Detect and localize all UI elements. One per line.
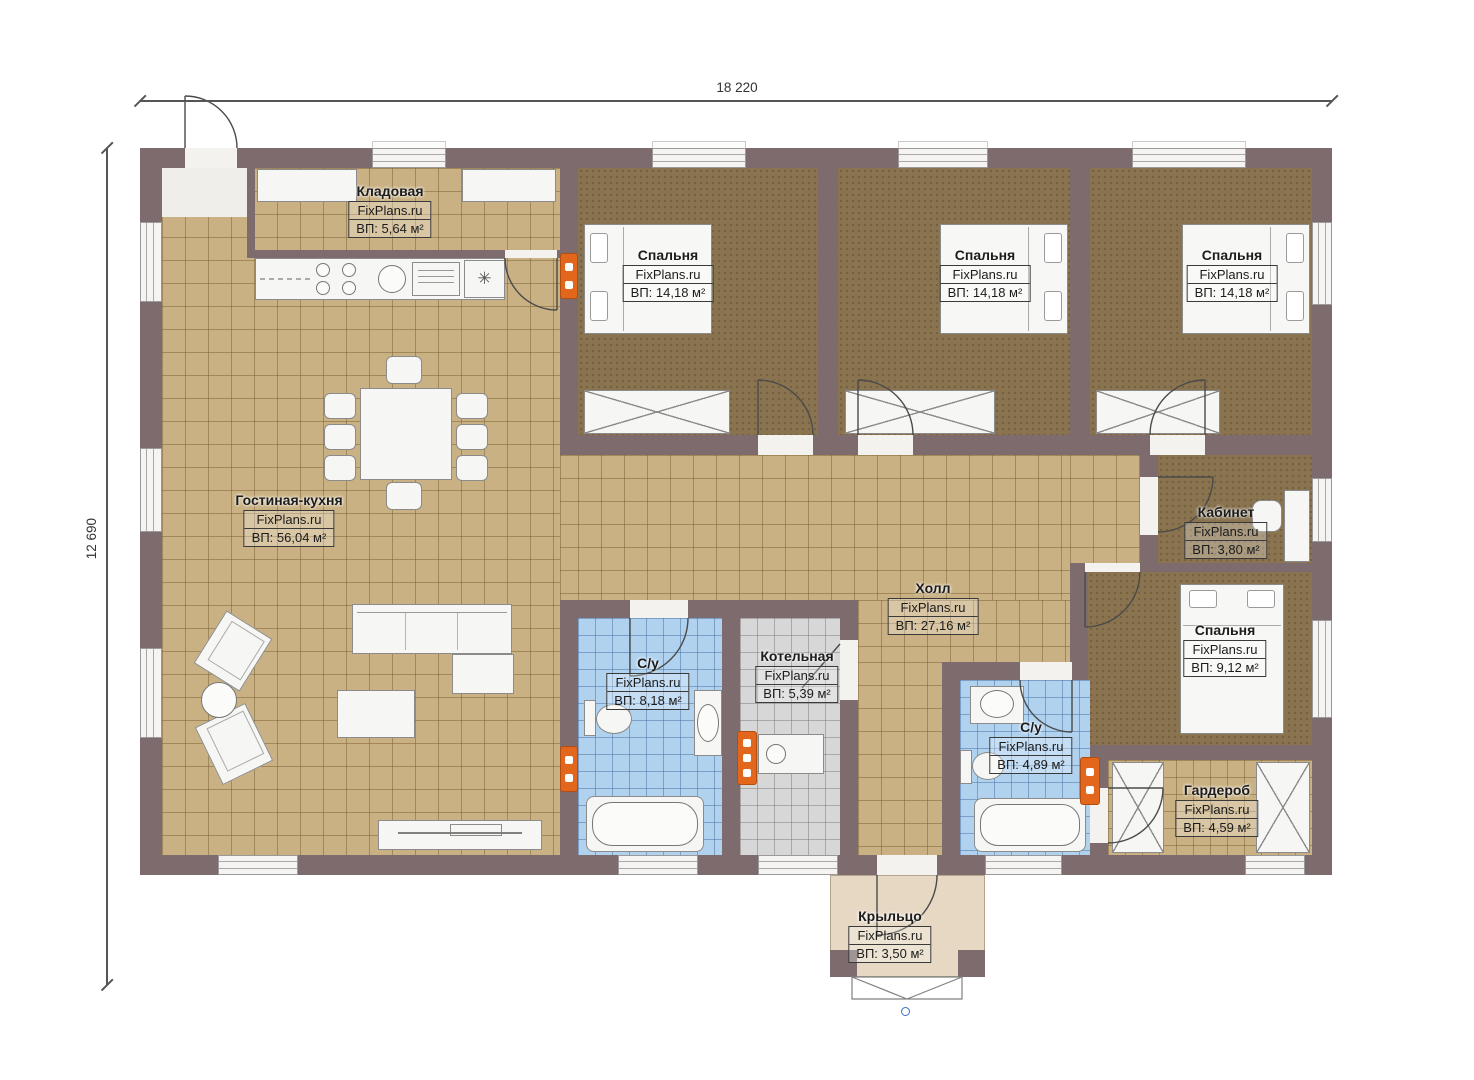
- room-label-bedroom3: Спальня FixPlans.ru ВП: 14,18 м²: [1187, 247, 1278, 302]
- entry-point-marker: [901, 1007, 910, 1016]
- radiator: [737, 731, 757, 785]
- wardrobe: [584, 390, 730, 434]
- room-info-box: FixPlans.ru ВП: 8,18 м²: [606, 673, 689, 710]
- hall-floor-south: [858, 662, 942, 855]
- wardrobe: [1256, 762, 1310, 853]
- room-area: ВП: 14,18 м²: [1188, 283, 1277, 301]
- window: [1312, 222, 1332, 305]
- chair: [456, 455, 488, 481]
- desk: [1284, 490, 1310, 562]
- room-name: Крыльцо: [848, 908, 931, 924]
- tv: [450, 824, 502, 836]
- room-label-hall: Холл FixPlans.ru ВП: 27,16 м²: [888, 580, 979, 635]
- brand-watermark: FixPlans.ru: [245, 511, 334, 528]
- room-area: ВП: 4,59 м²: [1176, 818, 1257, 836]
- dimension-line-top: [140, 100, 1332, 102]
- room-name: Спальня: [623, 247, 714, 263]
- window: [372, 148, 446, 168]
- room-name: Спальня: [1183, 622, 1266, 638]
- room-label-kabinet: Кабинет FixPlans.ru ВП: 3,80 м²: [1184, 504, 1267, 559]
- brand-watermark: FixPlans.ru: [607, 674, 688, 691]
- chair: [456, 393, 488, 419]
- chair: [324, 455, 356, 481]
- pillow: [1286, 233, 1304, 263]
- room-label-bedroom4: Спальня FixPlans.ru ВП: 9,12 м²: [1183, 622, 1266, 677]
- brand-watermark: FixPlans.ru: [1184, 641, 1265, 658]
- hall-floor-nook: [1070, 455, 1140, 563]
- room-label-living: Гостиная-кухня FixPlans.ru ВП: 56,04 м²: [235, 492, 342, 547]
- dimension-line-left: [106, 148, 108, 985]
- boiler-dial: [766, 744, 786, 764]
- sofa-chaise: [452, 654, 514, 694]
- pantry-shelf: [257, 169, 357, 202]
- room-name: Кабинет: [1184, 504, 1267, 520]
- door-opening: [1085, 563, 1140, 572]
- room-area: ВП: 5,39 м²: [756, 684, 837, 702]
- window: [1312, 620, 1332, 718]
- room-info-box: FixPlans.ru ВП: 3,50 м²: [848, 926, 931, 963]
- chair: [456, 424, 488, 450]
- brand-watermark: FixPlans.ru: [1185, 523, 1266, 540]
- room-info-box: FixPlans.ru ВП: 56,04 м²: [244, 510, 335, 547]
- pillow: [590, 233, 608, 263]
- chair: [324, 393, 356, 419]
- room-info-box: FixPlans.ru ВП: 14,18 м²: [623, 265, 714, 302]
- window: [618, 855, 698, 875]
- window: [140, 648, 162, 738]
- room-label-garderob: Гардероб FixPlans.ru ВП: 4,59 м²: [1175, 782, 1258, 837]
- room-area: ВП: 3,50 м²: [849, 944, 930, 962]
- door-opening: [758, 435, 813, 455]
- room-label-kladovaya: Кладовая FixPlans.ru ВП: 5,64 м²: [348, 183, 431, 238]
- coffee-table: [337, 690, 415, 738]
- room-area: ВП: 9,12 м²: [1184, 658, 1265, 676]
- room-info-box: FixPlans.ru ВП: 5,39 м²: [755, 666, 838, 703]
- porch-steps: [852, 977, 962, 999]
- dining-table: [360, 388, 452, 480]
- side-table: [201, 682, 237, 718]
- room-name: Гардероб: [1175, 782, 1258, 798]
- room-name: Кладовая: [348, 183, 431, 199]
- room-name: Холл: [888, 580, 979, 596]
- brand-watermark: FixPlans.ru: [1176, 801, 1257, 818]
- window: [1132, 148, 1246, 168]
- radiator: [560, 746, 578, 792]
- dishwasher-lines: [418, 270, 454, 288]
- room-area: ВП: 14,18 м²: [941, 283, 1030, 301]
- room-area: ВП: 8,18 м²: [607, 691, 688, 709]
- room-area: ВП: 14,18 м²: [624, 283, 713, 301]
- stove-burner-icon: [342, 281, 356, 295]
- room-info-box: FixPlans.ru ВП: 14,18 м²: [1187, 265, 1278, 302]
- room-area: ВП: 4,89 м²: [990, 755, 1071, 773]
- room-name: Спальня: [940, 247, 1031, 263]
- room-name: Спальня: [1187, 247, 1278, 263]
- bathtub-inner: [592, 802, 698, 846]
- brand-watermark: FixPlans.ru: [849, 927, 930, 944]
- entry-mat: [162, 168, 247, 217]
- door-opening: [630, 600, 688, 618]
- stove-burner-icon: [316, 281, 330, 295]
- pantry-shelf: [462, 169, 556, 202]
- window: [758, 855, 838, 875]
- window: [652, 148, 746, 168]
- window: [140, 448, 162, 532]
- door-opening: [505, 250, 557, 258]
- door-opening: [1150, 435, 1205, 455]
- brand-watermark: FixPlans.ru: [349, 202, 430, 219]
- room-info-box: FixPlans.ru ВП: 27,16 м²: [888, 598, 979, 635]
- room-area: ВП: 27,16 м²: [889, 616, 978, 634]
- brand-watermark: FixPlans.ru: [889, 599, 978, 616]
- pillow: [1247, 590, 1275, 608]
- wardrobe: [1112, 762, 1164, 853]
- room-label-bathroom2: С/у FixPlans.ru ВП: 4,89 м²: [989, 719, 1072, 774]
- room-name: С/у: [606, 655, 689, 671]
- door-opening: [1140, 477, 1158, 535]
- radiator: [560, 253, 578, 299]
- toilet-tank: [584, 700, 596, 736]
- radiator: [1080, 757, 1100, 805]
- window: [1245, 855, 1305, 875]
- chair: [386, 482, 422, 510]
- room-label-bedroom1: Спальня FixPlans.ru ВП: 14,18 м²: [623, 247, 714, 302]
- door-opening: [840, 640, 858, 700]
- room-label-bedroom2: Спальня FixPlans.ru ВП: 14,18 м²: [940, 247, 1031, 302]
- sofa-cushion-line: [457, 613, 458, 650]
- dishwasher: [412, 262, 460, 296]
- brand-watermark: FixPlans.ru: [990, 738, 1071, 755]
- window: [898, 148, 988, 168]
- entry-door-opening: [185, 148, 237, 168]
- door-opening: [1020, 662, 1072, 680]
- window: [1312, 478, 1332, 542]
- brand-watermark: FixPlans.ru: [1188, 266, 1277, 283]
- washbasin: [980, 690, 1014, 718]
- room-area: ВП: 56,04 м²: [245, 528, 334, 546]
- sofa-back-line: [357, 612, 507, 613]
- toilet-tank: [960, 750, 972, 784]
- door-opening: [858, 435, 913, 455]
- wardrobe: [1096, 390, 1220, 434]
- window: [140, 222, 162, 302]
- room-area: ВП: 5,64 м²: [349, 219, 430, 237]
- brand-watermark: FixPlans.ru: [941, 266, 1030, 283]
- pillow: [1044, 291, 1062, 321]
- kitchen-sink: [378, 265, 406, 293]
- room-name: С/у: [989, 719, 1072, 735]
- room-info-box: FixPlans.ru ВП: 9,12 м²: [1183, 640, 1266, 677]
- window: [218, 855, 298, 875]
- pillow: [1286, 291, 1304, 321]
- porch-pillar-right: [958, 950, 985, 977]
- room-name: Котельная: [755, 648, 838, 664]
- room-info-box: FixPlans.ru ВП: 4,89 м²: [989, 737, 1072, 774]
- chair: [324, 424, 356, 450]
- dimension-label-width: 18 220: [677, 80, 797, 95]
- room-label-porch: Крыльцо FixPlans.ru ВП: 3,50 м²: [848, 908, 931, 963]
- room-name: Гостиная-кухня: [235, 492, 342, 508]
- pantry-wall-vertical: [247, 168, 255, 258]
- room-label-bathroom1: С/у FixPlans.ru ВП: 8,18 м²: [606, 655, 689, 710]
- hall-passage-floor: [560, 455, 578, 600]
- washbasin: [697, 704, 719, 742]
- sofa: [352, 604, 512, 654]
- room-label-boiler: Котельная FixPlans.ru ВП: 5,39 м²: [755, 648, 838, 703]
- porch-door-opening: [877, 855, 937, 875]
- room-info-box: FixPlans.ru ВП: 5,64 м²: [348, 201, 431, 238]
- stove-burner-icon: [316, 263, 330, 277]
- pillow: [590, 291, 608, 321]
- hall-floor: [578, 455, 1070, 600]
- brand-watermark: FixPlans.ru: [756, 667, 837, 684]
- chair: [386, 356, 422, 384]
- pillow: [1189, 590, 1217, 608]
- fridge: ✳: [464, 260, 505, 298]
- sofa-cushion-line: [405, 613, 406, 650]
- room-info-box: FixPlans.ru ВП: 4,59 м²: [1175, 800, 1258, 837]
- bathtub-inner: [980, 804, 1080, 846]
- wardrobe: [845, 390, 995, 434]
- dimension-label-height: 12 690: [84, 518, 99, 559]
- entry-door-arc: [185, 96, 237, 148]
- room-area: ВП: 3,80 м²: [1185, 540, 1266, 558]
- freezer-icon: ✳: [477, 269, 491, 289]
- stove-burner-icon: [342, 263, 356, 277]
- window: [985, 855, 1062, 875]
- pillow: [1044, 233, 1062, 263]
- brand-watermark: FixPlans.ru: [624, 266, 713, 283]
- room-info-box: FixPlans.ru ВП: 3,80 м²: [1184, 522, 1267, 559]
- floor-plan: ✳: [0, 0, 1474, 1080]
- room-info-box: FixPlans.ru ВП: 14,18 м²: [940, 265, 1031, 302]
